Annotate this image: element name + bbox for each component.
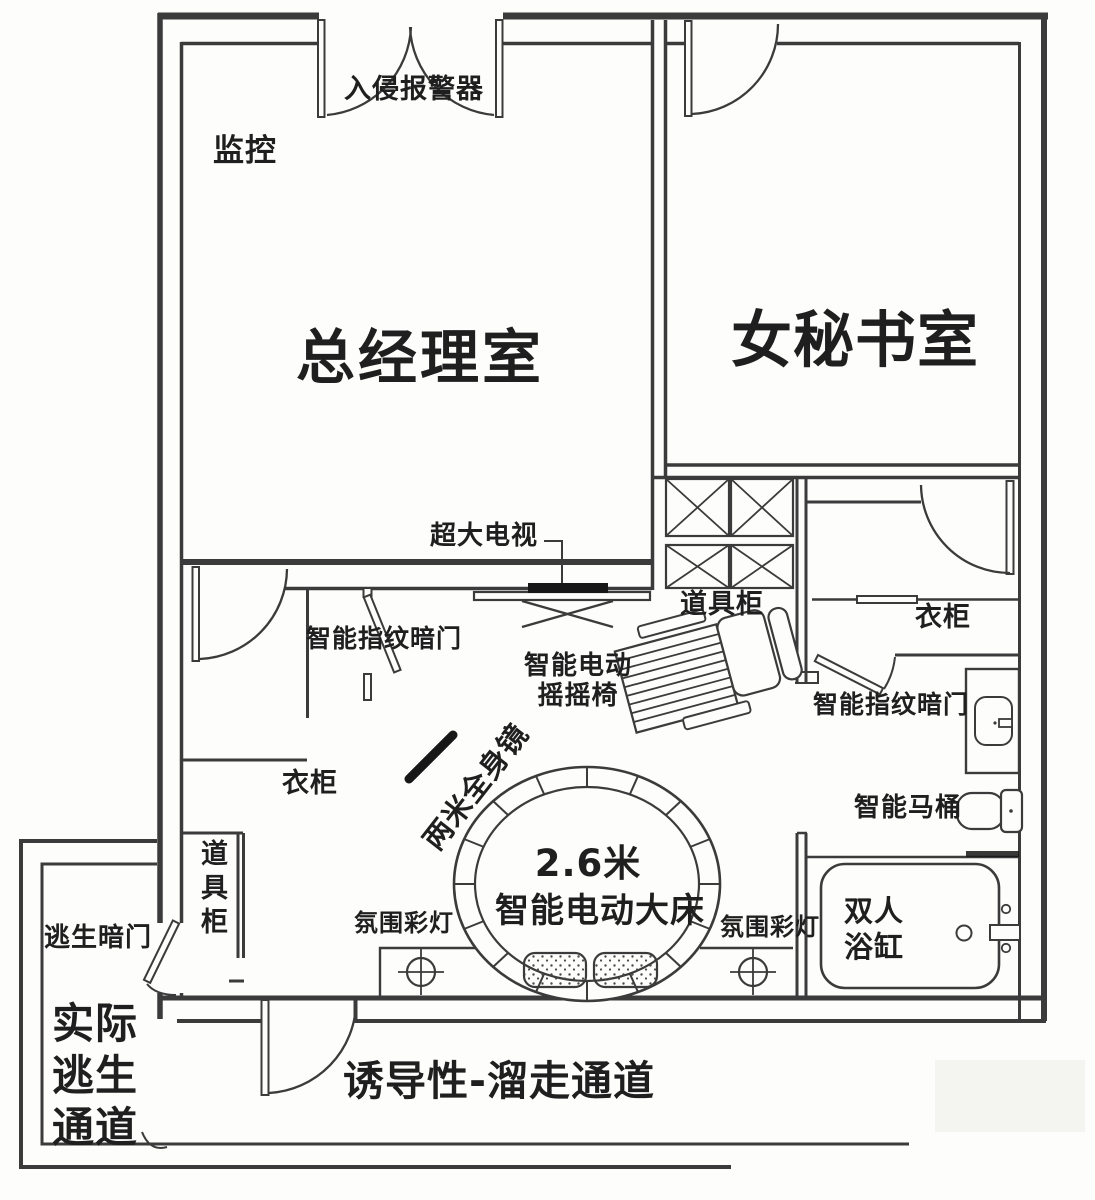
tv-unit xyxy=(474,541,650,627)
tv-screen xyxy=(528,583,608,593)
pillow-right xyxy=(594,953,657,987)
label-smart-bed: 智能电动大床 xyxy=(490,892,710,931)
watermark xyxy=(935,1060,1085,1132)
label-actual-escape-passage: 实际 逃生 通道 xyxy=(52,998,138,1154)
room-title-gm-office: 总经理室 xyxy=(265,324,575,392)
ambient-light-symbol-right xyxy=(730,949,776,995)
label-big-tv: 超大电视 xyxy=(430,522,538,552)
label-bed-size: 2.6米 xyxy=(508,843,668,886)
fingerprint-hidden-door-right xyxy=(815,655,895,694)
label-fingerprint-door-right: 智能指纹暗门 xyxy=(813,691,969,720)
floor-plan-drawing xyxy=(0,0,1095,1200)
ambient-light-symbol-left xyxy=(398,949,444,995)
label-ambient-light-right: 氛围彩灯 xyxy=(720,914,820,942)
label-wardrobe-left: 衣柜 xyxy=(282,768,338,799)
label-wardrobe-right: 衣柜 xyxy=(915,602,971,633)
full-body-mirror xyxy=(409,735,453,779)
label-surveillance: 监控 xyxy=(213,134,277,170)
prop-cabinet-right-hatched xyxy=(666,479,793,588)
door-secretary-room xyxy=(685,21,778,116)
pillow-left xyxy=(524,953,586,987)
label-fingerprint-door-left: 智能指纹暗门 xyxy=(306,625,462,654)
door-gm-to-closet xyxy=(193,567,288,661)
label-double-bathtub: 双人 浴缸 xyxy=(844,893,904,965)
label-decoy-corridor: 诱导性-溜走通道 xyxy=(343,1058,655,1105)
floor-plan: 入侵报警器 监控 总经理室 女秘书室 超大电视 道具柜 智能电动 摇摇椅 智能指… xyxy=(0,0,1095,1200)
label-intrusion-alarm: 入侵报警器 xyxy=(344,74,484,105)
smart-toilet-symbol xyxy=(957,790,1022,832)
label-prop-cabinet-right: 道具柜 xyxy=(680,589,764,620)
label-prop-cabinet-left: 道具柜 xyxy=(196,839,227,949)
door-bottom-corridor xyxy=(262,999,357,1095)
room-title-secretary: 女秘书室 xyxy=(705,306,1005,376)
sink xyxy=(966,669,1019,773)
label-smart-toilet: 智能马桶 xyxy=(854,794,962,824)
label-escape-hidden-door: 逃生暗门 xyxy=(44,924,152,954)
label-ambient-light-left: 氛围彩灯 xyxy=(354,910,454,938)
door-right-closet xyxy=(921,481,1014,574)
label-rocking-chair: 智能电动 摇摇椅 xyxy=(520,651,636,711)
